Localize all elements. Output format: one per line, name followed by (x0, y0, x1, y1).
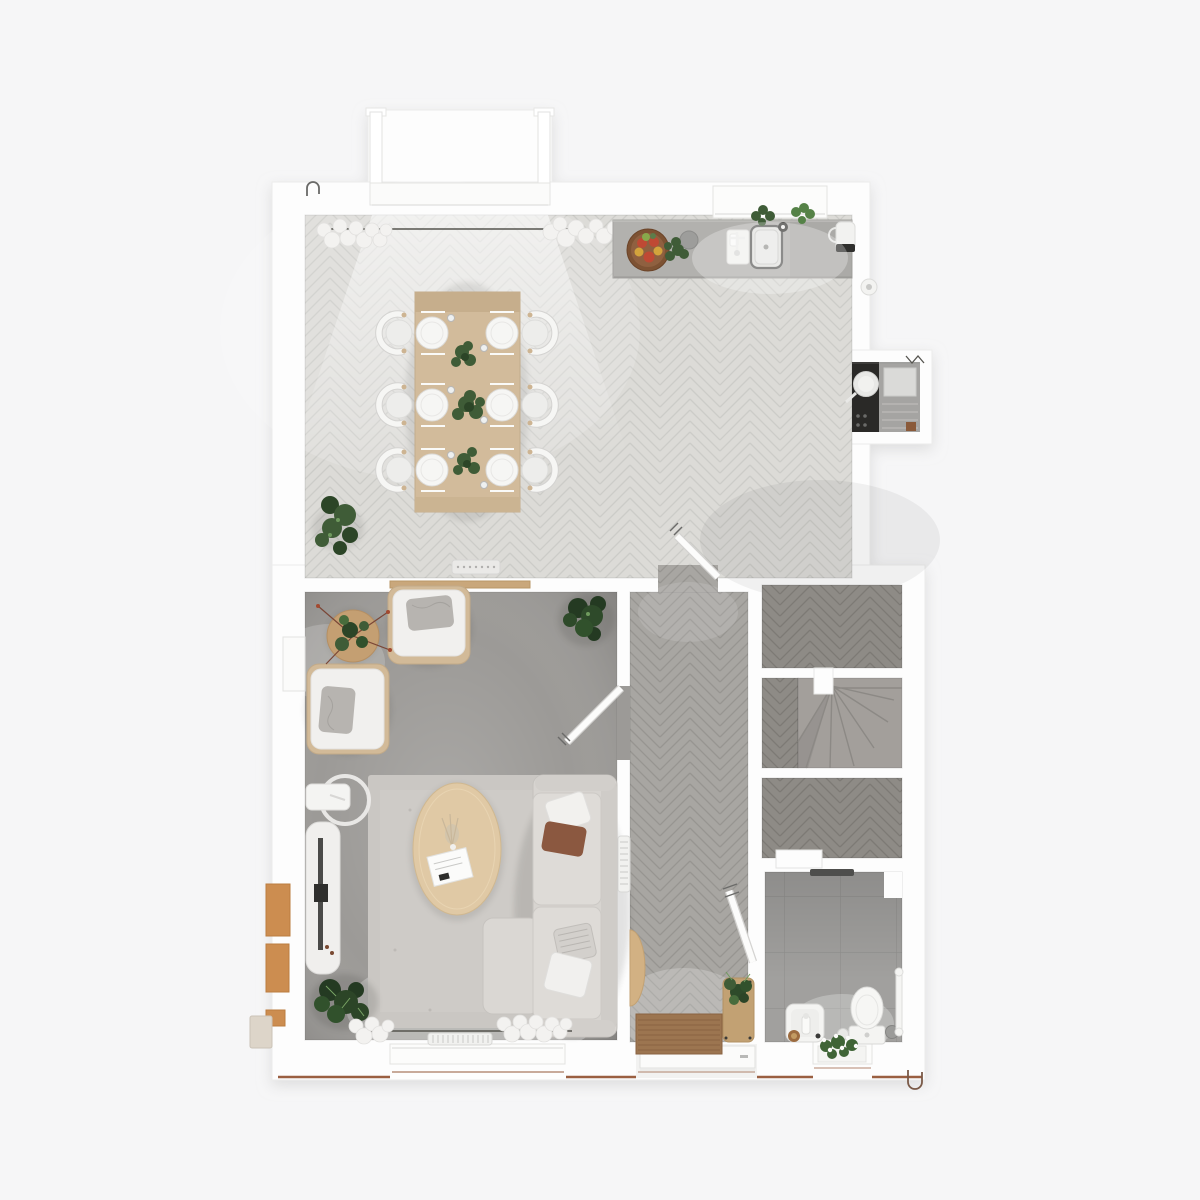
doormat (636, 1014, 722, 1054)
hall-radiator (618, 836, 630, 892)
floorplan-canvas (0, 0, 1200, 1200)
cushion (405, 595, 454, 632)
coffee-table (410, 783, 504, 921)
media-cabinet (306, 822, 340, 974)
front-door-handle (740, 1055, 748, 1058)
stove-niche (846, 362, 920, 432)
exterior-box (250, 1016, 272, 1048)
storage-lower-floor (762, 778, 902, 858)
stair-landing-floor (762, 678, 798, 768)
storage-upper-floor (762, 585, 902, 668)
floor-vent (452, 560, 500, 574)
floorplan-image (0, 0, 1200, 1200)
wash-basin (786, 1004, 824, 1042)
towel-rail (895, 968, 903, 1036)
paper-roll-core (866, 284, 872, 290)
corner-plant (558, 594, 614, 646)
sofa-chaise (483, 918, 539, 1014)
living-rear-window (390, 1044, 565, 1064)
staircase (798, 668, 902, 768)
toilet (849, 987, 885, 1044)
stair-newel-block (814, 668, 833, 694)
oven-cabinet (884, 368, 916, 396)
hall-bench (723, 972, 754, 1042)
flush-button (865, 1033, 870, 1038)
armchair (304, 664, 392, 756)
armchair (385, 586, 473, 668)
tv-mount (314, 884, 328, 902)
shower-drain-strip (810, 869, 854, 876)
living-radiator (428, 1033, 492, 1045)
bathroom-wall-notch (884, 872, 902, 898)
oven-mitt (906, 422, 916, 431)
storage-lower-door (776, 850, 822, 868)
cushion (318, 686, 356, 735)
living-side-window (283, 637, 305, 691)
fruit-bowl (627, 229, 669, 271)
